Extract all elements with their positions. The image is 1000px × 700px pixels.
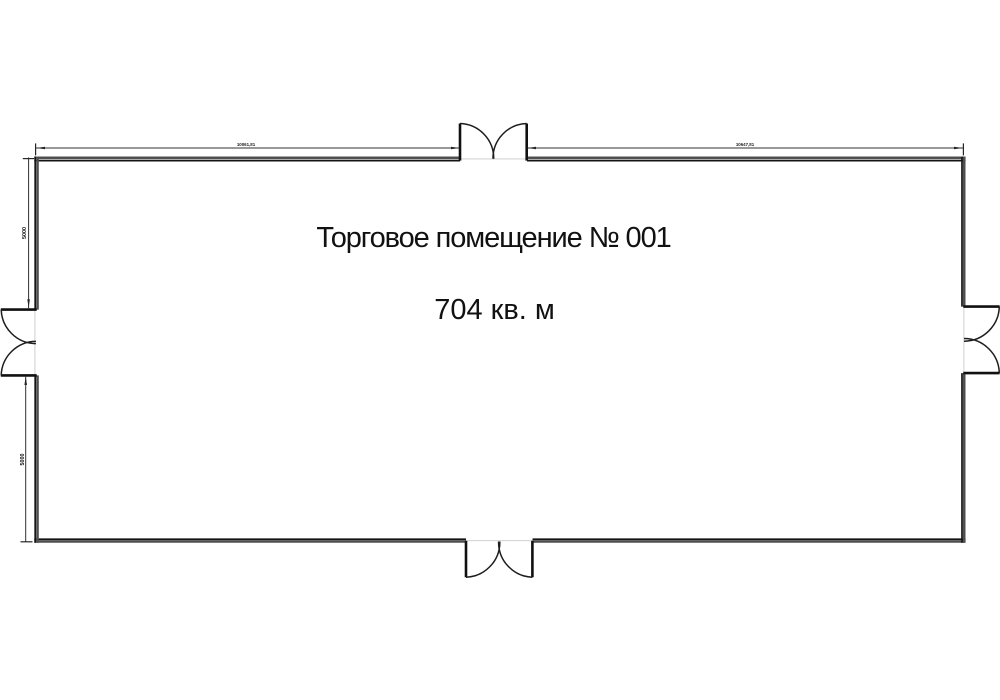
svg-text:5000: 5000 [22, 227, 28, 239]
svg-text:10061,81: 10061,81 [237, 142, 256, 147]
svg-text:704 кв. м: 704 кв. м [434, 294, 555, 326]
svg-text:10647,81: 10647,81 [736, 142, 755, 147]
svg-text:5000: 5000 [20, 454, 26, 466]
svg-text:Торговое помещение № 001: Торговое помещение № 001 [316, 222, 670, 254]
